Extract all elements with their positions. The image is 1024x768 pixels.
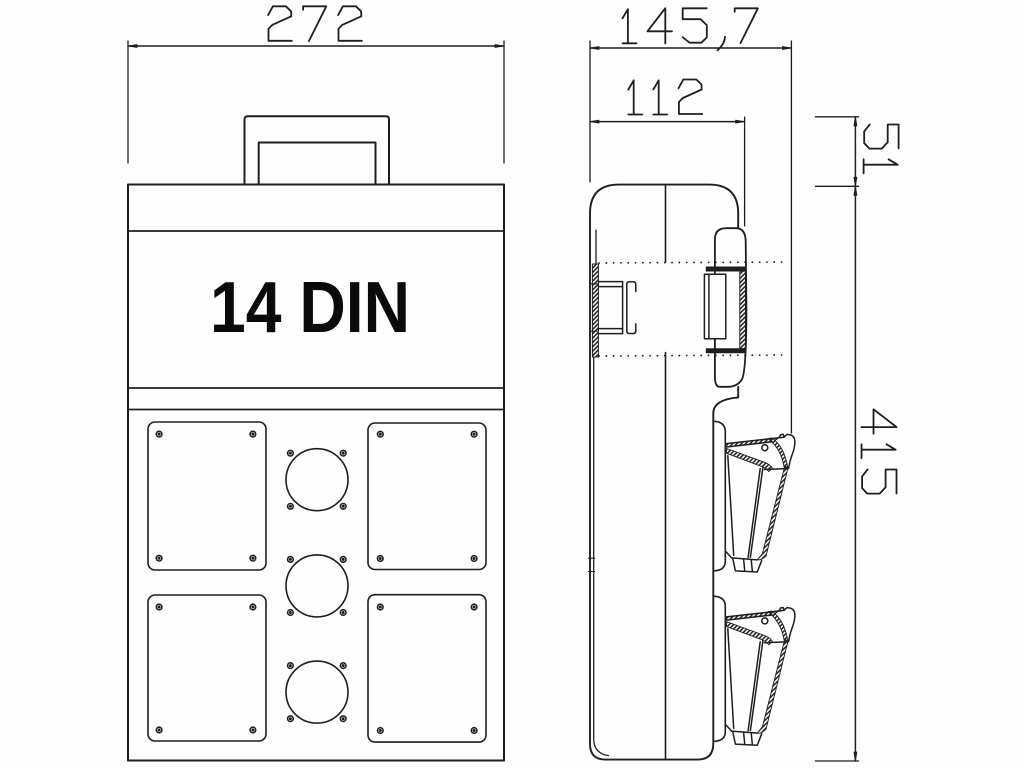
svg-text:14 DIN: 14 DIN <box>210 267 410 348</box>
